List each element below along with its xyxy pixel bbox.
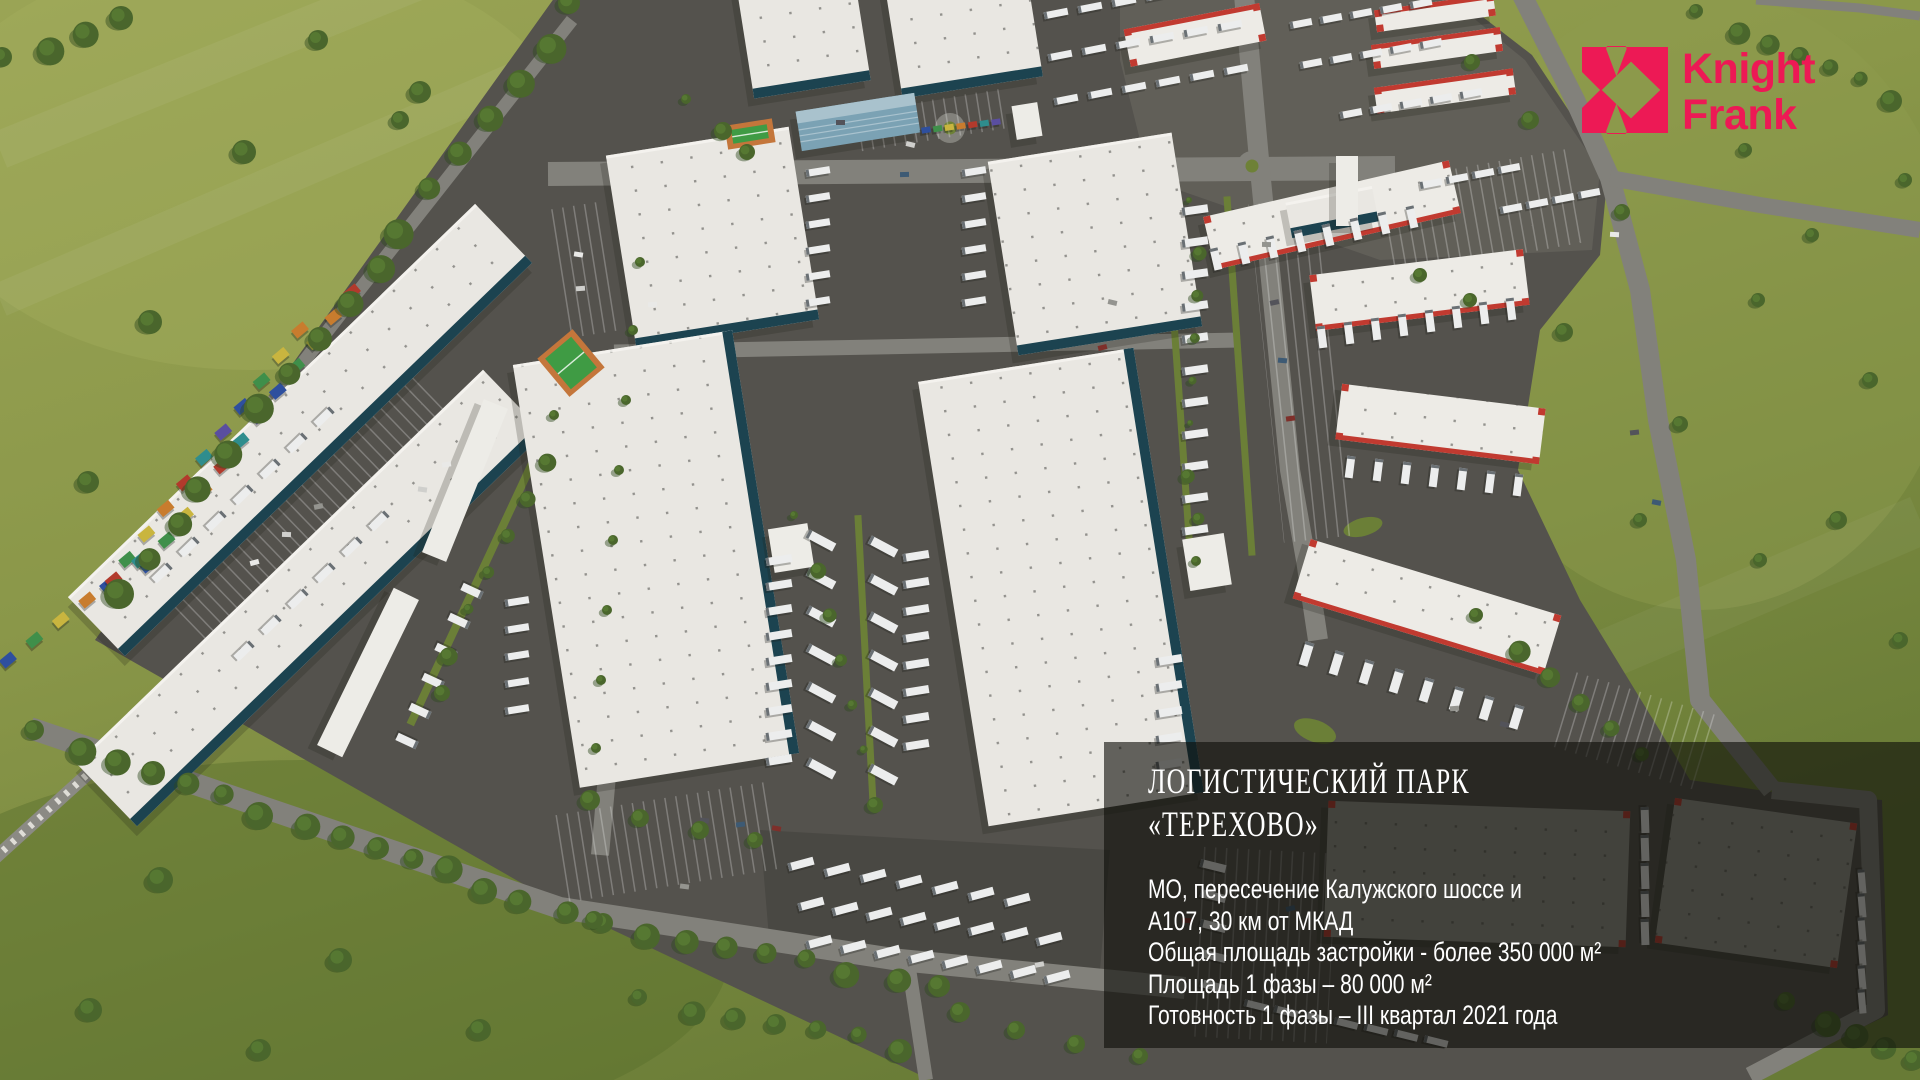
detail-phase1-readiness: Готовность 1 фазы – III квартал 2021 год…	[1148, 1000, 1750, 1032]
project-title-line2: «ТЕРЕХОВО»	[1148, 804, 1319, 844]
project-details: МО, пересечение Калужского шоссе и А107,…	[1148, 874, 1750, 1032]
knight-frank-mark-icon	[1582, 46, 1668, 134]
logo-line-2: Frank	[1682, 92, 1815, 138]
knight-frank-logo: Knight Frank	[1582, 46, 1815, 138]
logo-line-1: Knight	[1682, 46, 1815, 92]
info-panel: ЛОГИСТИЧЕСКИЙ ПАРК «ТЕРЕХОВО» МО, пересе…	[1104, 742, 1920, 1048]
detail-total-area: Общая площадь застройки - более 350 000 …	[1148, 937, 1750, 969]
slide: Knight Frank ЛОГИСТИЧЕСКИЙ ПАРК «ТЕРЕХОВ…	[0, 0, 1920, 1080]
project-title-line1: ЛОГИСТИЧЕСКИЙ ПАРК	[1148, 761, 1470, 801]
knight-frank-wordmark: Knight Frank	[1682, 46, 1815, 138]
detail-phase1-area: Площадь 1 фазы – 80 000 м²	[1148, 969, 1750, 1001]
detail-location-2: А107, 30 км от МКАД	[1148, 906, 1750, 938]
project-title: ЛОГИСТИЧЕСКИЙ ПАРК «ТЕРЕХОВО»	[1148, 760, 1704, 846]
detail-location-1: МО, пересечение Калужского шоссе и	[1148, 874, 1750, 906]
